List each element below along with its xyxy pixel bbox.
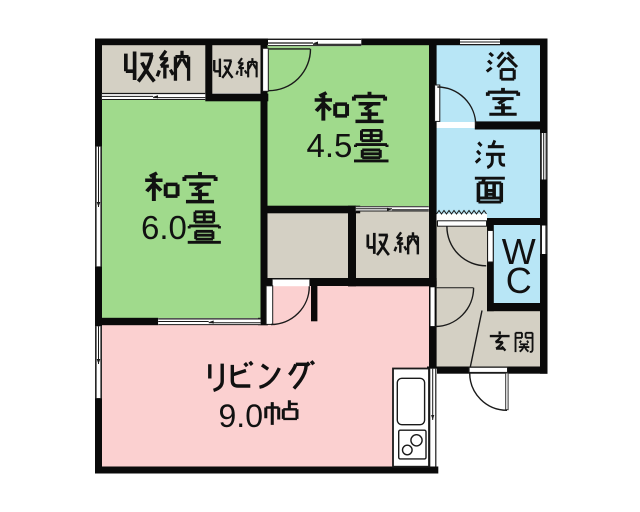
svg-text:6.0: 6.0 [141, 209, 187, 246]
svg-text:9.0: 9.0 [219, 398, 263, 434]
svg-text:4.5: 4.5 [307, 127, 353, 164]
svg-text:C: C [506, 260, 532, 301]
